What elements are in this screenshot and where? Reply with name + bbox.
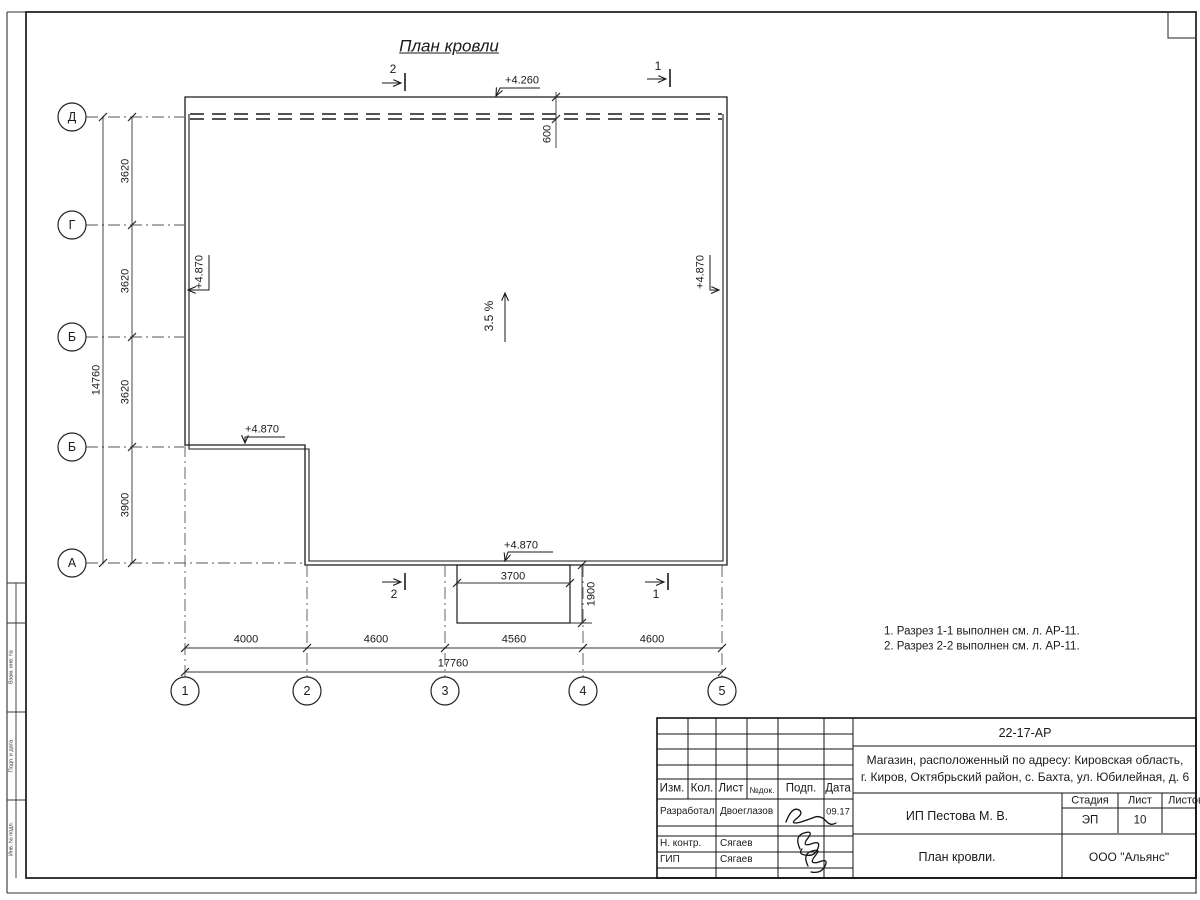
- tb-header-podp: Подп.: [786, 783, 817, 795]
- grid-col-label-5: 5: [719, 685, 726, 698]
- grid-row-label-b1: Б: [68, 331, 76, 344]
- margin-stamp-label-1: Взам. инв. №: [9, 650, 15, 684]
- tb-row2-name: Сягаев: [720, 839, 753, 849]
- roof-outline: [185, 97, 727, 565]
- address-line-1: Магазин, расположенный по адресу: Кировс…: [867, 754, 1184, 766]
- grid-row-label-d: Д: [68, 111, 76, 124]
- note-line-2: 2. Разрез 2-2 выполнен см. л. АР-11.: [884, 641, 1080, 653]
- row-dim-2: 3620: [121, 269, 132, 293]
- tb-row1-role: Разработал: [660, 807, 714, 817]
- tb-header-ndok: №док.: [750, 786, 775, 795]
- elevation-notch: +4.870: [245, 425, 279, 436]
- tb-header-izm: Изм.: [660, 783, 685, 795]
- doc-code: 22-17-АР: [999, 727, 1052, 740]
- note-line-1: 1. Разрез 1-1 выполнен см. л. АР-11.: [884, 626, 1080, 638]
- grid-bubbles: [58, 103, 736, 705]
- tb-header-data: Дата: [825, 783, 850, 795]
- grid-col-label-3: 3: [442, 685, 449, 698]
- tb-client: ИП Пестова М. В.: [906, 810, 1008, 823]
- elevation-top: +4.260: [505, 76, 539, 87]
- plan-title: План кровли: [399, 38, 499, 55]
- row-dim-4: 3900: [121, 493, 132, 517]
- tb-row2-role: Н. контр.: [660, 839, 701, 849]
- tb-sheet-title: План кровли.: [918, 851, 995, 864]
- top-wall-dashed: [190, 114, 722, 119]
- tb-stage-value: ЭП: [1082, 815, 1099, 827]
- section-marks: [382, 69, 670, 590]
- dimension-lines: [103, 92, 722, 672]
- tb-sheets-header: Листов: [1168, 796, 1200, 807]
- tb-row3-role: ГИП: [660, 855, 680, 865]
- tb-row1-date: 09.17: [826, 807, 850, 817]
- grid-row-label-g: Г: [69, 219, 76, 232]
- grid-col-label-1: 1: [182, 685, 189, 698]
- elevation-bottom: +4.870: [504, 541, 538, 552]
- tb-row1-name: Двоеглазов: [720, 807, 773, 817]
- tb-header-list: Лист: [719, 783, 744, 795]
- address-line-2: г. Киров, Октябрьский район, с. Бахта, у…: [861, 771, 1189, 783]
- col-dim-4: 4600: [640, 635, 664, 646]
- corner-stamp-box: [1168, 12, 1196, 38]
- col-dim-3: 4560: [502, 635, 526, 646]
- section1-top-label: 1: [655, 60, 662, 72]
- row-total-dim: 14760: [92, 365, 103, 396]
- tb-row3-name: Сягаев: [720, 855, 753, 865]
- margin-stamp-label-3: Инв. № подл.: [9, 822, 15, 856]
- elevation-right: +4.870: [696, 255, 707, 289]
- tb-sheet-header: Лист: [1128, 796, 1152, 807]
- signatures: [786, 809, 836, 872]
- drawing-sheet: План кровли 2 1 2 1 +4.260 600 +4.870 +4…: [0, 0, 1200, 900]
- grid-row-label-a: А: [68, 557, 76, 570]
- grid-row-label-b2: Б: [68, 441, 76, 454]
- section1-bottom-label: 1: [653, 588, 660, 600]
- dimension-ticks: [99, 93, 726, 676]
- tb-company: ООО "Альянс": [1089, 851, 1169, 863]
- elevation-left: +4.870: [195, 255, 206, 289]
- col-dim-1: 4000: [234, 635, 258, 646]
- grid-col-label-4: 4: [580, 685, 587, 698]
- tb-sheet-value: 10: [1134, 815, 1147, 827]
- grid-col-label-2: 2: [304, 685, 311, 698]
- porch-depth-dim: 1900: [587, 582, 598, 606]
- grid-centerlines: [86, 117, 722, 677]
- overhang-dim: 600: [543, 125, 554, 143]
- col-total-dim: 17760: [438, 659, 469, 670]
- tb-header-kol: Кол.: [691, 783, 714, 795]
- elevation-leaders: [188, 88, 719, 561]
- section2-bottom-label: 2: [391, 588, 398, 600]
- margin-stamp-label-2: Подп. и дата: [9, 740, 15, 772]
- tb-stage-header: Стадия: [1071, 796, 1109, 807]
- col-dim-2: 4600: [364, 635, 388, 646]
- slope-label: 3.5 %: [483, 301, 495, 332]
- row-dim-3: 3620: [121, 380, 132, 404]
- section2-top-label: 2: [390, 63, 397, 75]
- wall-inner-line: [189, 114, 723, 561]
- porch-width-dim: 3700: [501, 572, 525, 583]
- row-dim-1: 3620: [121, 159, 132, 183]
